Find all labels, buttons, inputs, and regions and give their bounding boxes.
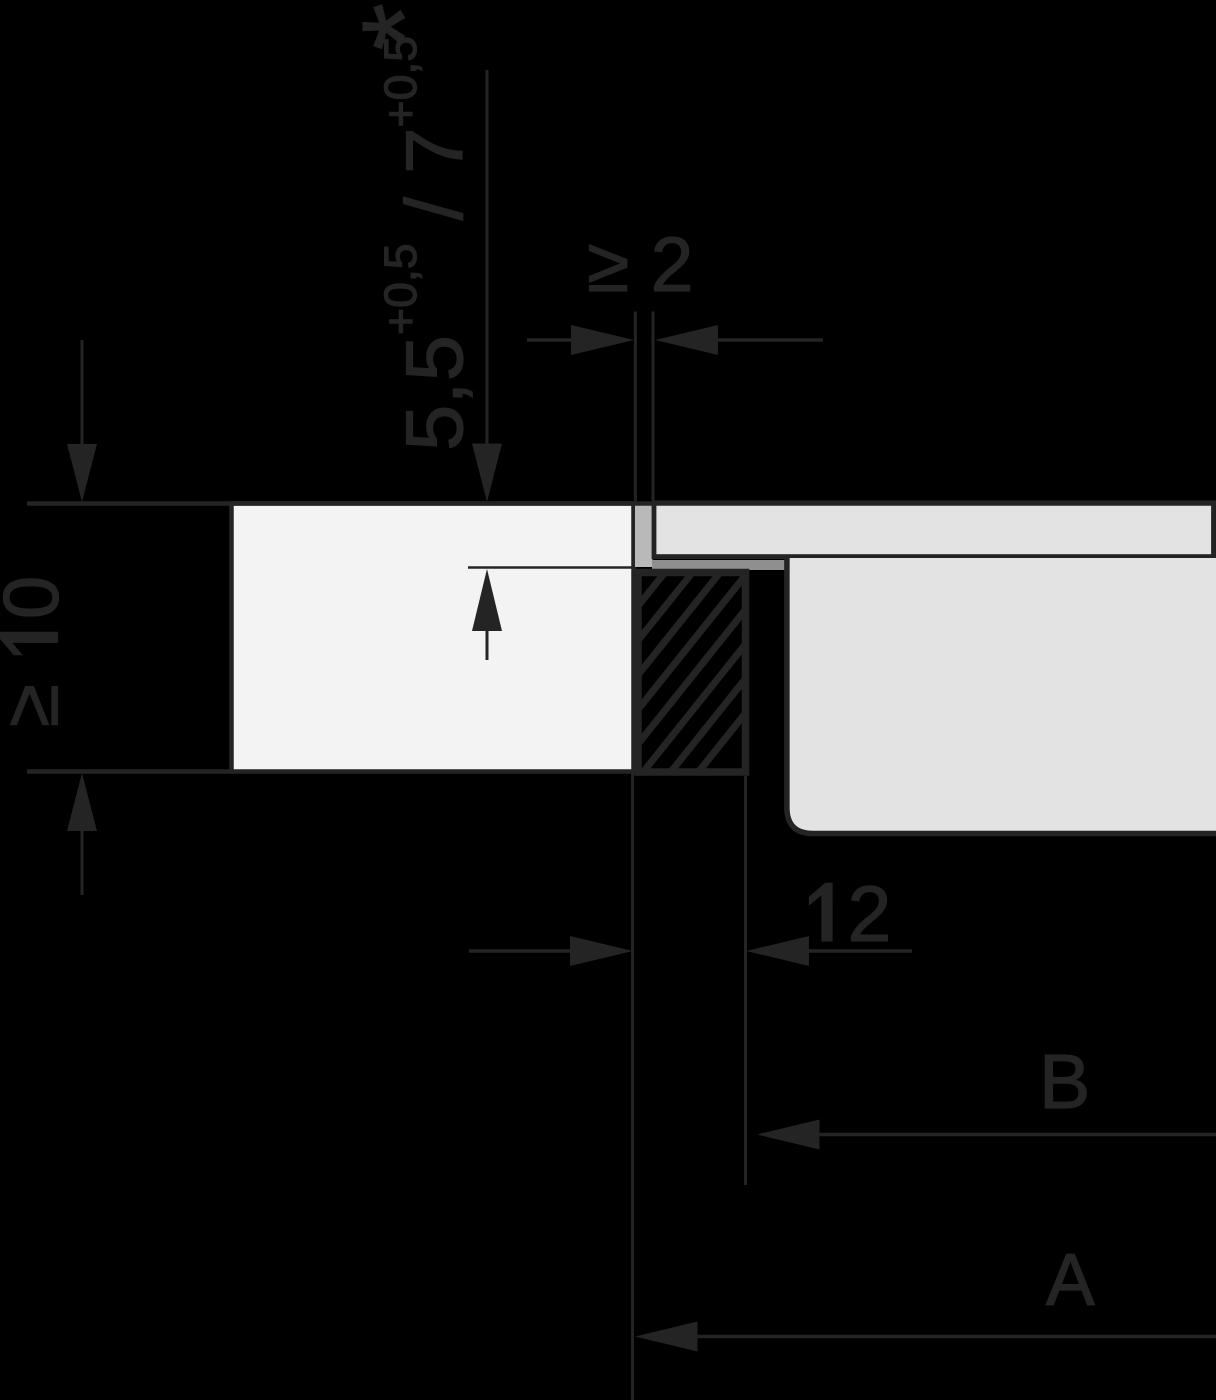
svg-text:≥: ≥ <box>0 684 75 727</box>
svg-text:≥ 2: ≥ 2 <box>587 222 693 308</box>
svg-text:0: 0 <box>0 576 75 619</box>
svg-text:B: B <box>1039 1039 1090 1125</box>
svg-text:2: 2 <box>848 869 892 958</box>
svg-text:A: A <box>1046 1240 1095 1321</box>
